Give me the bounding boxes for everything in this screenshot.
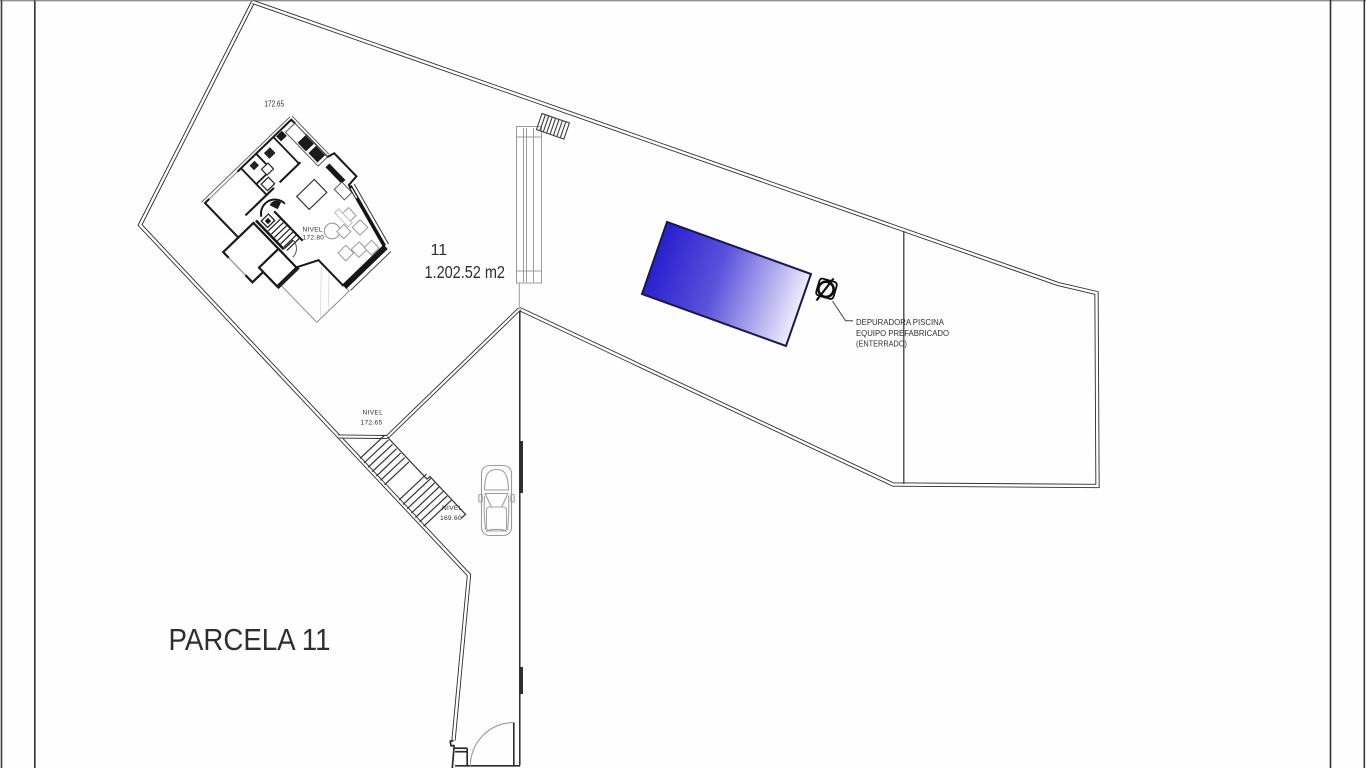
svg-text:NIVEL: NIVEL: [442, 505, 463, 512]
svg-text:EQUIPO PREFABRICADO: EQUIPO PREFABRICADO: [856, 329, 949, 338]
svg-text:NIVEL: NIVEL: [363, 410, 384, 417]
svg-text:172.80: 172.80: [303, 235, 325, 242]
svg-text:PARCELA 11: PARCELA 11: [169, 622, 331, 657]
svg-text:11: 11: [431, 242, 448, 259]
svg-text:1.202.52 m2: 1.202.52 m2: [425, 262, 506, 282]
svg-text:172.65: 172.65: [265, 99, 285, 109]
svg-text:DEPURADORA PISCINA: DEPURADORA PISCINA: [856, 318, 945, 327]
svg-text:NIVEL: NIVEL: [303, 227, 323, 234]
svg-text:169.60: 169.60: [440, 515, 462, 522]
svg-text:(ENTERRADO): (ENTERRADO): [856, 340, 907, 349]
svg-text:172.65: 172.65: [361, 420, 383, 427]
